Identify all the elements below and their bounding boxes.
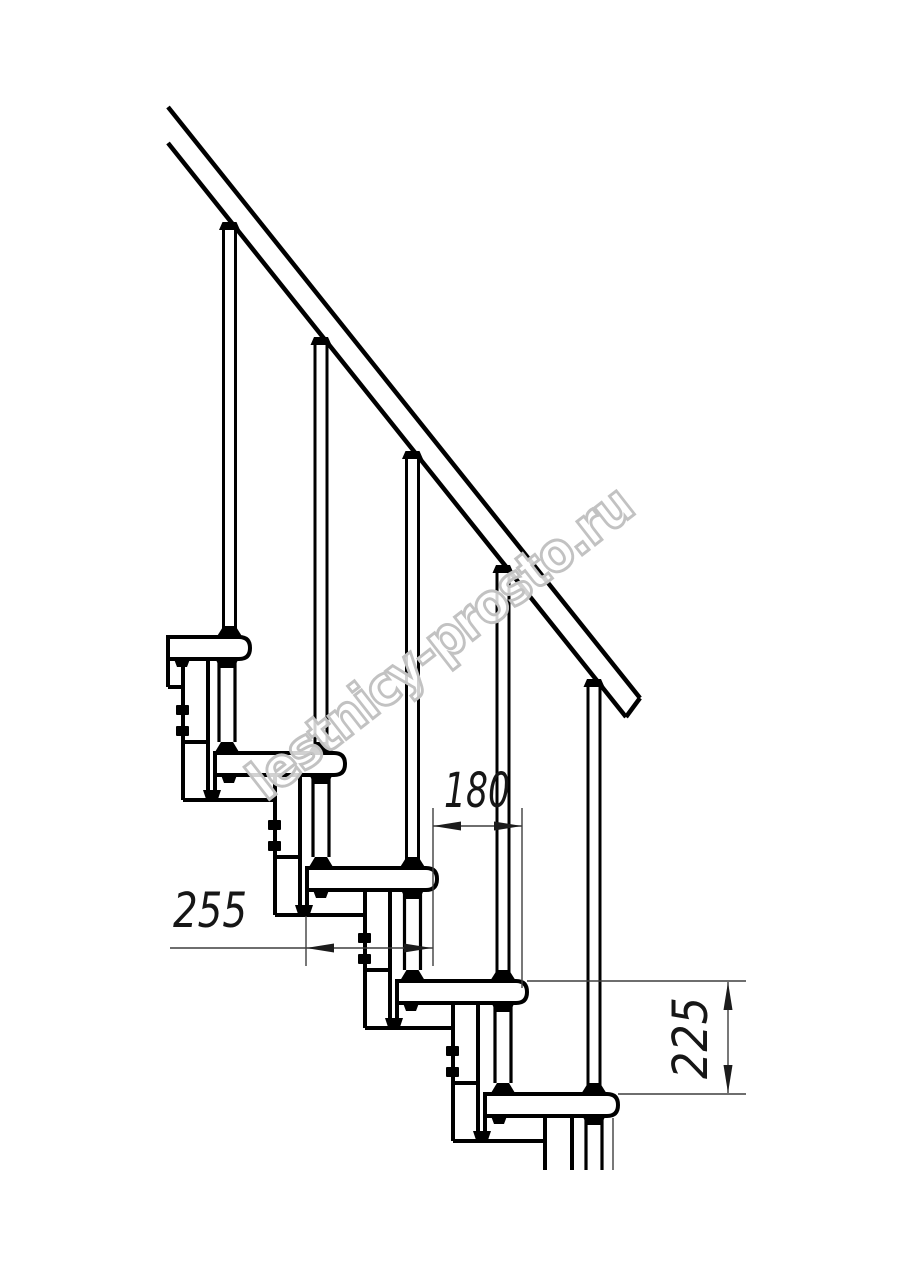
staircase-drawing: 180 255 225 lestnicy-prosto.ru [0, 0, 914, 1280]
arrowhead-up [724, 982, 733, 1010]
baluster-foot [401, 857, 425, 867]
drawing-canvas: 180 255 225 lestnicy-prosto.ru [0, 0, 914, 1280]
support-tube-1 [215, 660, 239, 752]
joint-connector [203, 790, 221, 799]
arrowhead-down [724, 1065, 733, 1093]
dimension-225-label: 225 [663, 997, 719, 1079]
bolt [268, 841, 281, 851]
bolt [358, 954, 371, 964]
bolt [446, 1067, 459, 1077]
handrail [168, 107, 640, 717]
joint-connector [473, 1131, 491, 1140]
baluster-5 [582, 679, 606, 1094]
tread-underside-connector [313, 890, 329, 898]
joint-connector [295, 905, 313, 914]
dimension-255-label: 255 [173, 883, 247, 939]
tread-underside-connector [491, 1116, 507, 1124]
tread-underside-connector [174, 659, 190, 667]
dimension-225: 225 [527, 981, 746, 1094]
bolt [358, 933, 371, 943]
baluster-foot [582, 1083, 606, 1093]
support-tube-5 [583, 1117, 605, 1170]
arrowhead-right [404, 944, 432, 953]
joint-connector [385, 1018, 403, 1027]
tread-4 [397, 981, 527, 1003]
handrail-end-cap [626, 698, 640, 717]
support-tube-4 [491, 1004, 515, 1093]
baluster-1 [218, 222, 242, 637]
baluster-top-connector [402, 451, 423, 459]
support-tube-3 [401, 891, 425, 980]
baluster-top-connector [311, 337, 332, 345]
watermark-text: lestnicy-prosto.ru [235, 473, 644, 812]
support-tube-2 [309, 776, 333, 867]
tread-1 [168, 637, 250, 659]
baluster-foot [491, 970, 515, 980]
bolt [176, 705, 189, 715]
arrowhead-left [433, 822, 461, 831]
tread-5 [485, 1094, 618, 1116]
baluster-top-connector [219, 222, 240, 230]
bolt [268, 820, 281, 830]
baluster-top-connector [584, 679, 605, 687]
arrowhead-left [306, 944, 334, 953]
tread-underside-connector [403, 1003, 419, 1011]
dimension-180-label: 180 [444, 763, 510, 819]
baluster-foot [218, 626, 242, 636]
bolt [446, 1046, 459, 1056]
bolt [176, 726, 189, 736]
handrail-top-edge [168, 107, 640, 698]
tread-3 [307, 868, 437, 890]
tread-underside-connector [221, 775, 237, 783]
